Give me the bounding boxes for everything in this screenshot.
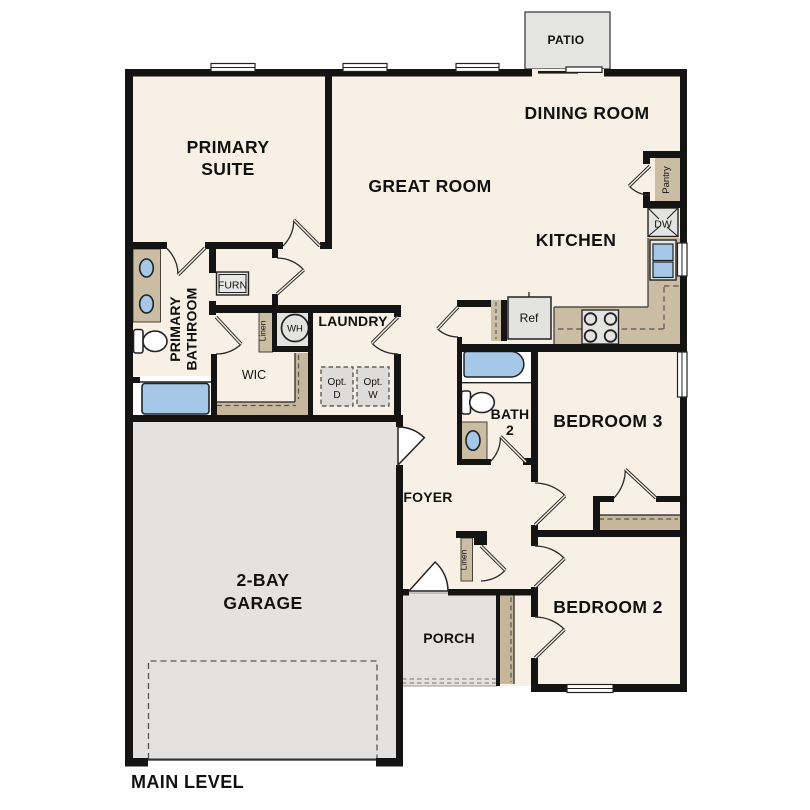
- svg-text:DINING ROOM: DINING ROOM: [525, 103, 650, 123]
- svg-text:PRIMARY: PRIMARY: [167, 296, 183, 362]
- svg-text:GREAT ROOM: GREAT ROOM: [368, 176, 491, 196]
- svg-text:Linen: Linen: [459, 549, 469, 570]
- svg-text:PORCH: PORCH: [423, 630, 475, 646]
- svg-text:D: D: [333, 390, 340, 401]
- svg-text:Ref: Ref: [520, 311, 539, 325]
- svg-text:WH: WH: [287, 324, 303, 335]
- svg-text:BEDROOM 2: BEDROOM 2: [553, 597, 663, 617]
- svg-text:2: 2: [506, 422, 514, 438]
- svg-text:KITCHEN: KITCHEN: [536, 230, 617, 250]
- svg-text:Linen: Linen: [258, 320, 268, 341]
- svg-text:Opt.: Opt.: [328, 377, 347, 388]
- svg-text:Opt.: Opt.: [364, 377, 383, 388]
- svg-text:2-BAY: 2-BAY: [237, 570, 290, 590]
- svg-text:WIC: WIC: [242, 368, 266, 382]
- svg-text:Pantry: Pantry: [661, 166, 672, 194]
- svg-text:FURN: FURN: [218, 280, 247, 292]
- svg-text:MAIN LEVEL: MAIN LEVEL: [131, 772, 244, 792]
- svg-text:BATHROOM: BATHROOM: [184, 288, 200, 371]
- svg-text:PRIMARY: PRIMARY: [187, 137, 270, 157]
- svg-text:PATIO: PATIO: [548, 33, 585, 47]
- svg-text:BATH: BATH: [491, 406, 530, 422]
- svg-text:BEDROOM 3: BEDROOM 3: [553, 411, 663, 431]
- svg-text:LAUNDRY: LAUNDRY: [318, 313, 388, 329]
- svg-text:GARAGE: GARAGE: [223, 593, 302, 613]
- svg-text:FOYER: FOYER: [403, 489, 452, 505]
- svg-text:DW: DW: [654, 219, 672, 231]
- svg-text:SUITE: SUITE: [201, 159, 255, 179]
- svg-text:W: W: [368, 390, 378, 401]
